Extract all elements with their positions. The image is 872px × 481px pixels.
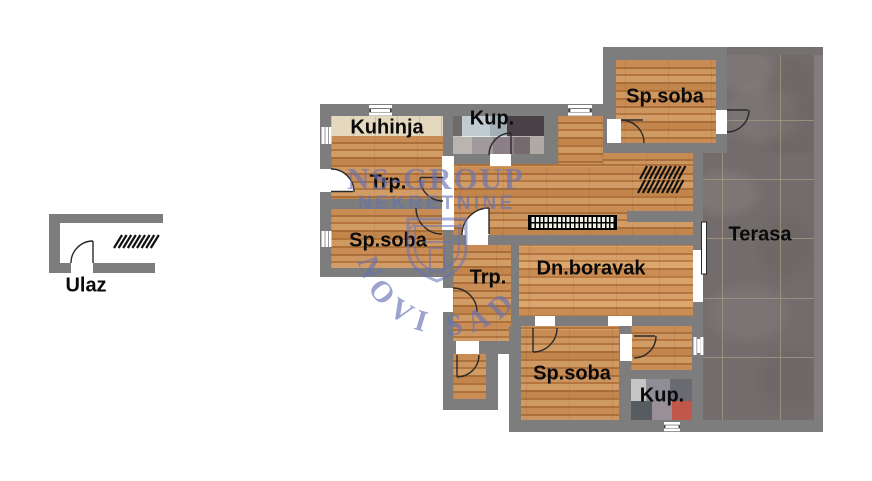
svg-text:NS-GROUP: NS-GROUP [347, 161, 525, 196]
svg-text:NEKRETNINE: NEKRETNINE [358, 193, 516, 214]
svg-text:NOVI SAD: NOVI SAD [350, 252, 525, 343]
